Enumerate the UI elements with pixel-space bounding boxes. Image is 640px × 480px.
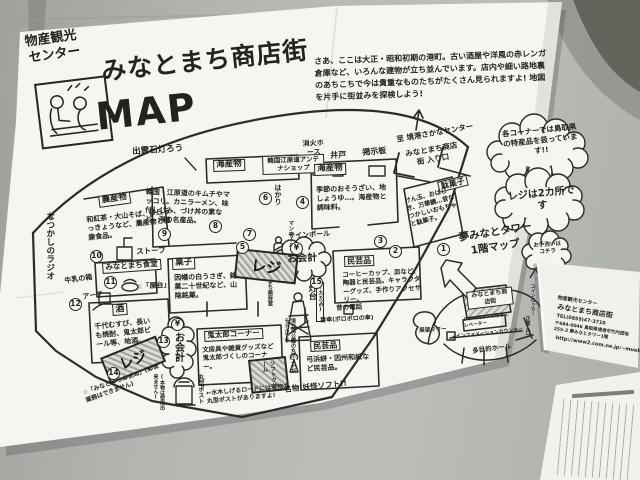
label-stove: ストーブ xyxy=(136,246,166,256)
intro-paragraph: さあ、ここは大正・昭和初期の港町。古い酒屋や洋風の赤レンガ倉庫など、いろんな建物… xyxy=(314,48,548,104)
circled-number-8: 8 xyxy=(209,220,222,233)
circled-number-5: 5 xyxy=(236,241,249,254)
label-sake: 酒 xyxy=(112,303,128,316)
label-seafood-2: 海産物 xyxy=(314,163,346,176)
circled-number-9: 9 xyxy=(158,228,171,241)
label-mingei-2: 民芸品 xyxy=(310,339,341,352)
label-nostalgic-radio: なつかしのラジオ xyxy=(44,212,54,296)
circled-number-15: 15 xyxy=(310,276,323,289)
photo-scene: 物産観光 センター みなとまち商店街 MAP さあ、ここは大正・昭和初期の港町。… xyxy=(0,0,640,480)
desc-mingei-1: コーヒーカップ、皿など、陶器と民芸品。キャラクターグッズ、手作りアクセサリー。 xyxy=(342,267,424,305)
circled-number-12: 12 xyxy=(69,298,82,311)
circled-number-2: 2 xyxy=(389,245,402,258)
checkout-2-text: お会計 xyxy=(172,332,184,366)
register-1-label: レジ xyxy=(250,254,282,278)
tower-label-front-gate: 正面入口 xyxy=(524,316,530,342)
label-scale: はかり xyxy=(274,184,282,216)
checkout-1-text: お会計 xyxy=(287,252,318,265)
label-mingei-1: 民芸品 xyxy=(344,255,374,267)
circled-number-11: 11 xyxy=(104,276,117,289)
note-post-model: 境台場公園の丸ポストがモデルです xyxy=(283,318,296,374)
label-old-phone: 昔の電話 xyxy=(336,304,362,313)
circled-number-3: 3 xyxy=(374,235,387,248)
circled-number-6: 6 xyxy=(259,192,272,205)
checkout-2-yen-icon: ¥ xyxy=(171,318,184,331)
circled-number-1: 1 xyxy=(437,243,450,256)
label-kashi: 菓子 xyxy=(172,257,195,270)
tower-label-locker: コインロッカー xyxy=(530,284,535,322)
label-well: 井戸 xyxy=(330,150,346,160)
circled-number-7: 7 xyxy=(243,228,256,241)
circled-number-4: 4 xyxy=(296,196,309,209)
label-seafood-1: 海産物 xyxy=(213,159,245,172)
circled-number-13: 13 xyxy=(157,335,170,348)
label-round-post: 丸型ポスト xyxy=(196,374,203,414)
desc-seafood-2: 季節のおそうざい、地しょうゆ…。海産物と調味料。 xyxy=(316,183,391,213)
bubble-toilet-text: お手洗いはコチラ xyxy=(531,241,564,257)
desc-mingei-2: 弓浜絣・因州和紙など民芸品。 xyxy=(306,353,371,375)
clipping-text-texture xyxy=(557,399,639,480)
circled-number-14: 14 xyxy=(107,367,120,380)
circled-number-10: 10 xyxy=(90,250,103,263)
desc-kashi: 因幡の白うさぎ、銘菓二十世紀など、山陰銘菓。 xyxy=(174,272,243,302)
checkout-1-yen-icon: ¥ xyxy=(290,242,303,255)
register-2-label: レジ xyxy=(116,345,149,374)
